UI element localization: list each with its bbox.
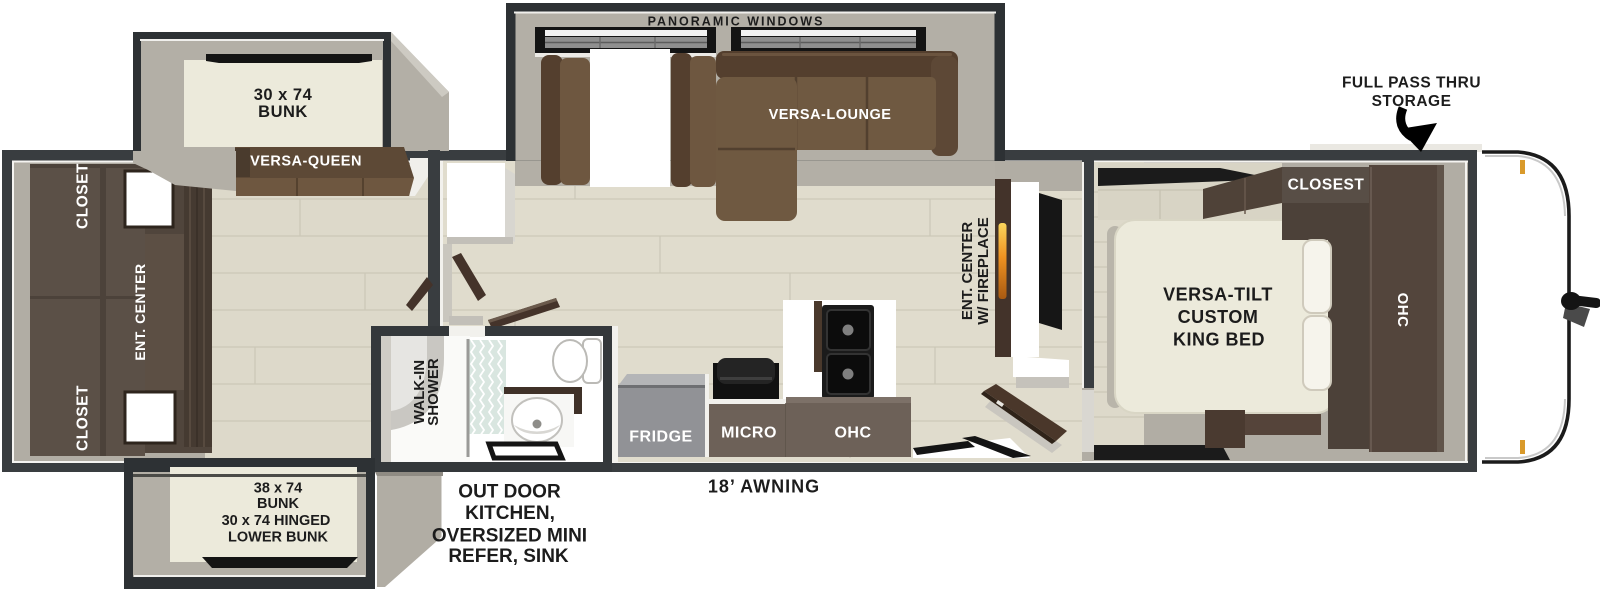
svg-text:30 x 74 HINGED: 30 x 74 HINGED [222, 513, 331, 529]
svg-text:BUNK: BUNK [258, 103, 308, 121]
svg-text:ENT. CENTER: ENT. CENTER [959, 222, 976, 321]
svg-text:SHOWER: SHOWER [425, 358, 442, 426]
svg-text:OVERSIZED MINI: OVERSIZED MINI [432, 526, 587, 547]
svg-text:CLOSET: CLOSET [75, 163, 92, 229]
svg-text:OUT DOOR: OUT DOOR [458, 482, 561, 503]
svg-text:38 x 74: 38 x 74 [254, 481, 302, 497]
svg-text:OHC: OHC [1394, 293, 1411, 328]
svg-text:18’ AWNING: 18’ AWNING [708, 477, 820, 497]
svg-text:ENT. CENTER: ENT. CENTER [132, 263, 148, 360]
svg-text:OHC: OHC [834, 425, 871, 442]
svg-text:VERSA-QUEEN: VERSA-QUEEN [250, 154, 362, 170]
svg-text:CUSTOM: CUSTOM [1178, 307, 1259, 327]
svg-text:REFER, SINK: REFER, SINK [448, 546, 569, 567]
svg-text:VERSA-LOUNGE: VERSA-LOUNGE [769, 107, 892, 123]
svg-text:30 x 74: 30 x 74 [254, 86, 313, 104]
svg-text:PANORAMIC WINDOWS: PANORAMIC WINDOWS [648, 15, 825, 29]
svg-text:LOWER BUNK: LOWER BUNK [228, 530, 328, 546]
svg-text:STORAGE: STORAGE [1372, 93, 1452, 110]
svg-text:KITCHEN,: KITCHEN, [465, 503, 555, 524]
svg-text:VERSA-TILT: VERSA-TILT [1163, 285, 1273, 305]
svg-text:FULL PASS THRU: FULL PASS THRU [1342, 75, 1481, 92]
svg-text:MICRO: MICRO [721, 425, 777, 442]
svg-text:CLOSEST: CLOSEST [1288, 177, 1365, 194]
svg-text:FRIDGE: FRIDGE [629, 429, 692, 446]
svg-text:BUNK: BUNK [257, 496, 299, 512]
svg-text:CLOSET: CLOSET [75, 385, 92, 451]
svg-text:W/ FIREPLACE: W/ FIREPLACE [975, 217, 992, 325]
svg-text:KING BED: KING BED [1173, 330, 1265, 350]
